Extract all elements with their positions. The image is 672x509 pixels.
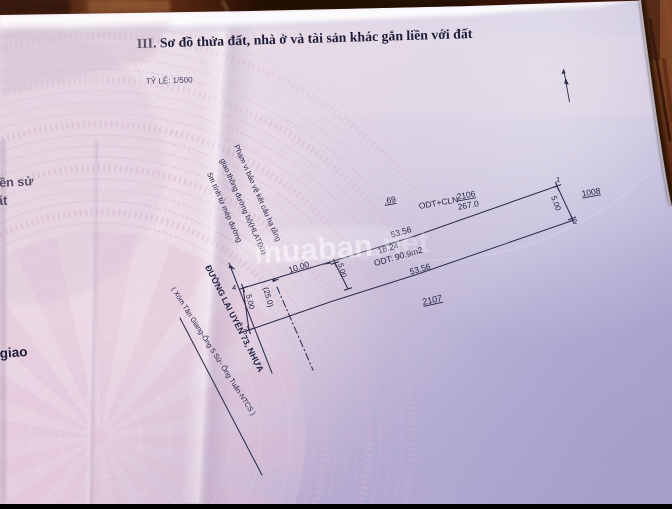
svg-text:4: 4 bbox=[232, 283, 236, 292]
svg-text:2: 2 bbox=[573, 217, 577, 226]
svg-text:1: 1 bbox=[556, 175, 560, 184]
svg-text:.69: .69 bbox=[383, 194, 397, 206]
svg-text:TỶ LỆ: 1/500: TỶ LỆ: 1/500 bbox=[146, 75, 194, 86]
svg-text:.net: .net bbox=[373, 224, 430, 263]
